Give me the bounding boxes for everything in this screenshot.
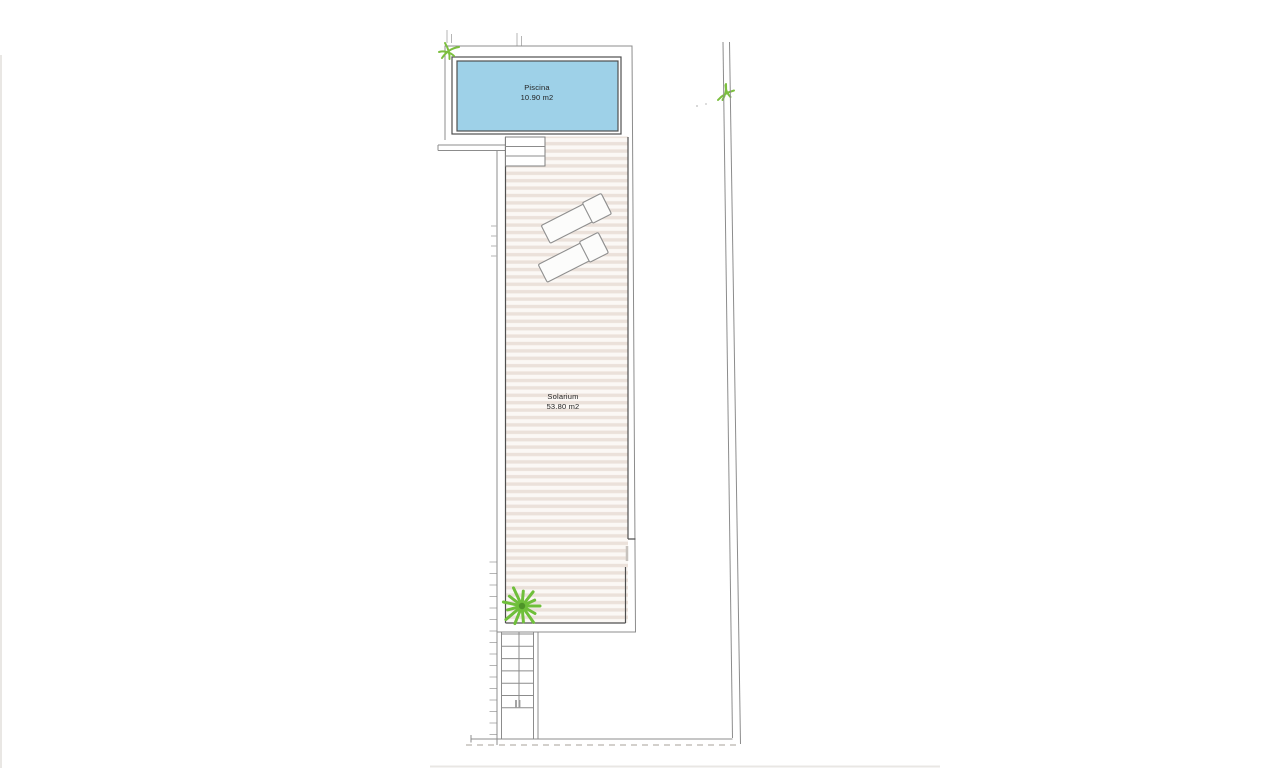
solarium-name: Solarium: [503, 392, 623, 402]
floorplan-canvas: Piscina 10.90 m2 Solarium 53.80 m2: [0, 0, 1280, 768]
solarium-area: 53.80 m2: [503, 402, 623, 412]
property-boundary-line: [723, 42, 741, 744]
stair-section-mark: [516, 700, 520, 708]
staircase: [502, 632, 539, 739]
plant-sprig-icon: [718, 84, 734, 100]
plot-bottom-lines: [466, 735, 741, 745]
pool-area: 10.90 m2: [477, 93, 597, 103]
dimension-ticks-left: [490, 226, 498, 735]
pool-name: Piscina: [477, 83, 597, 93]
scan-edge-artifacts: [1, 55, 940, 768]
survey-ticks-top: [447, 30, 522, 46]
solarium-deck: [506, 137, 636, 624]
solarium-label: Solarium 53.80 m2: [503, 392, 623, 412]
pool-steps: [506, 137, 546, 166]
floorplan-linework: [0, 0, 1280, 768]
pool-label: Piscina 10.90 m2: [477, 83, 597, 103]
